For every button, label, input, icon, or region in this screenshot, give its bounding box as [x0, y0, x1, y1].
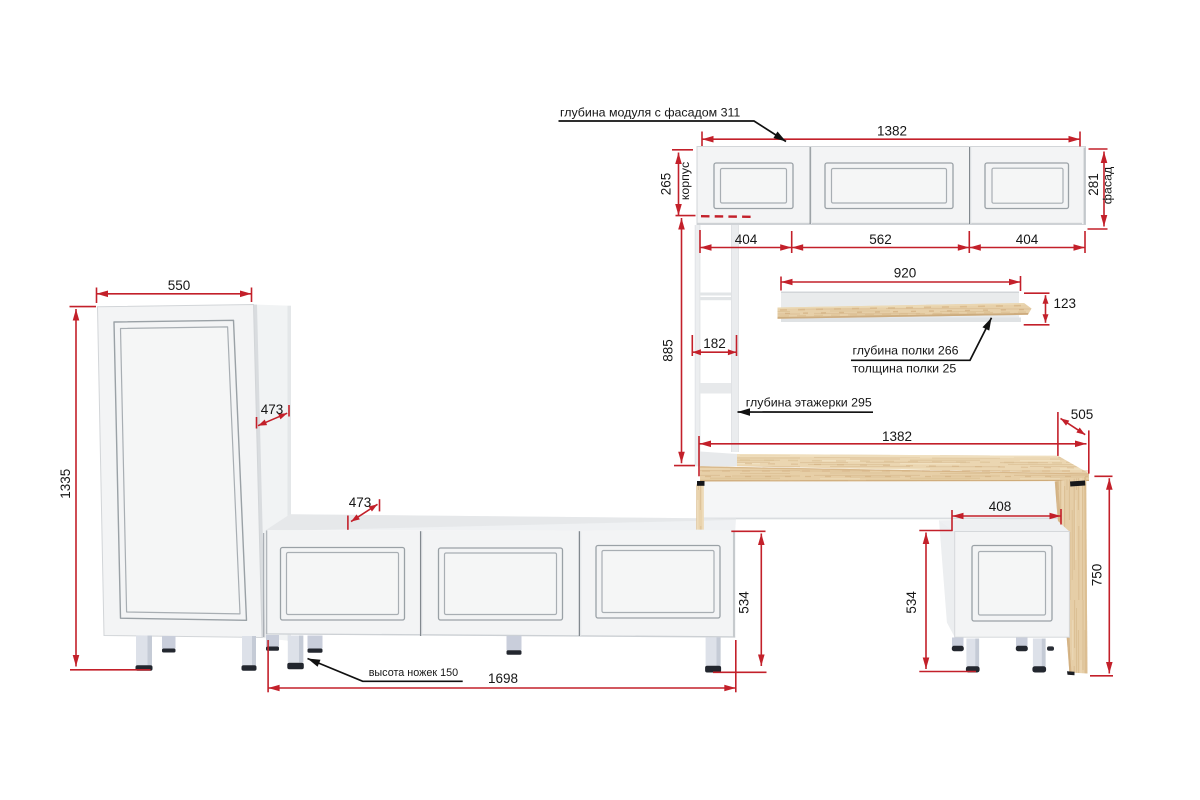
svg-text:550: 550: [168, 278, 191, 293]
svg-text:408: 408: [989, 499, 1012, 514]
svg-text:фасад: фасад: [1101, 166, 1115, 204]
svg-text:182: 182: [703, 336, 726, 351]
svg-text:высота ножек 150: высота ножек 150: [369, 667, 458, 679]
svg-text:1382: 1382: [882, 429, 912, 444]
svg-text:562: 562: [869, 232, 892, 247]
svg-text:404: 404: [735, 232, 758, 247]
svg-text:920: 920: [894, 266, 917, 281]
svg-text:534: 534: [904, 591, 919, 614]
svg-text:473: 473: [349, 495, 372, 510]
svg-text:505: 505: [1071, 407, 1094, 422]
svg-text:толщина полки 25: толщина полки 25: [853, 362, 957, 376]
svg-text:885: 885: [661, 339, 676, 362]
svg-text:1382: 1382: [877, 124, 907, 139]
svg-text:1698: 1698: [488, 671, 518, 686]
svg-text:534: 534: [737, 591, 752, 614]
svg-text:750: 750: [1090, 564, 1105, 587]
svg-text:корпус: корпус: [678, 162, 692, 200]
svg-text:глубина модуля с фасадом 311: глубина модуля с фасадом 311: [560, 106, 740, 120]
svg-text:1335: 1335: [58, 469, 73, 499]
svg-text:глубина этажерки 295: глубина этажерки 295: [746, 396, 872, 410]
svg-text:265: 265: [659, 173, 674, 196]
svg-text:123: 123: [1054, 296, 1077, 311]
svg-text:глубина полки 266: глубина полки 266: [853, 344, 959, 358]
svg-text:473: 473: [261, 402, 284, 417]
svg-text:404: 404: [1016, 232, 1039, 247]
svg-text:281: 281: [1086, 173, 1101, 196]
